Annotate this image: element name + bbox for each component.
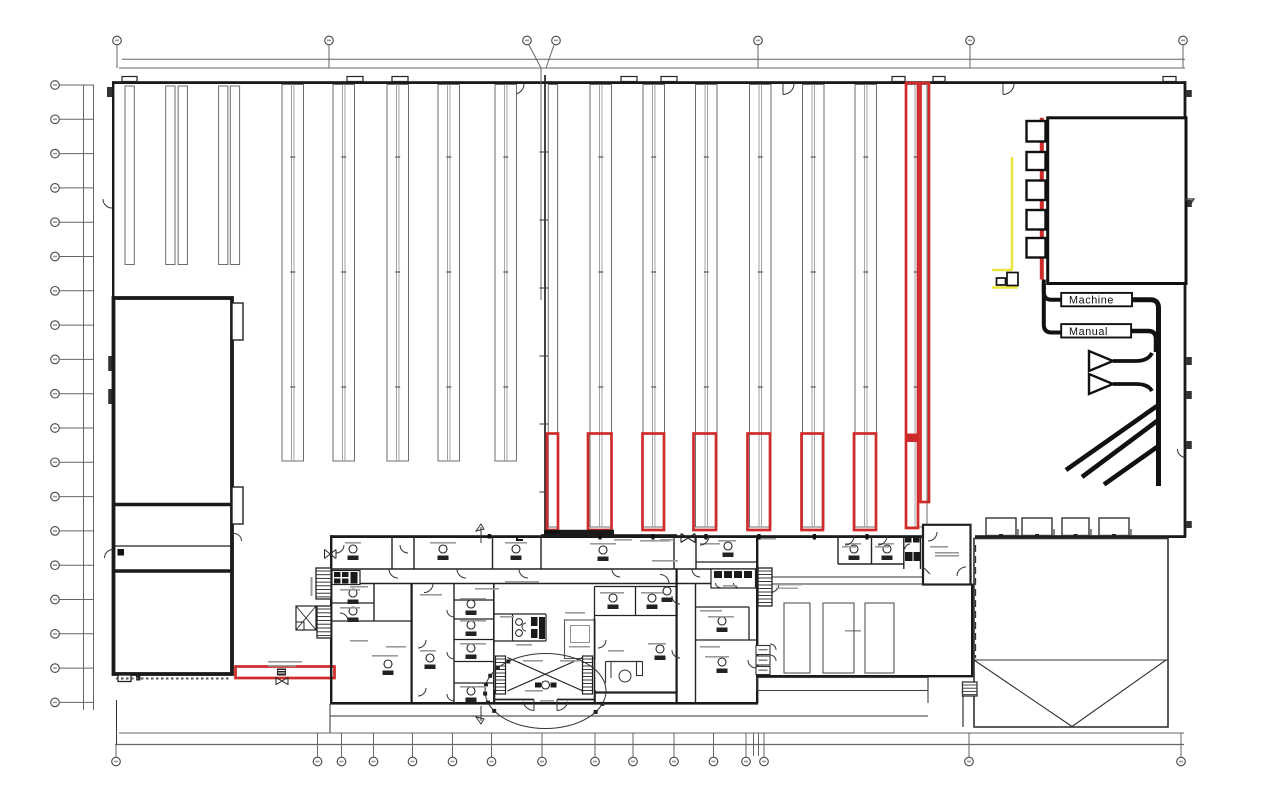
svg-text:Manual: Manual	[1069, 326, 1108, 338]
svg-text:Machine: Machine	[1069, 295, 1114, 307]
